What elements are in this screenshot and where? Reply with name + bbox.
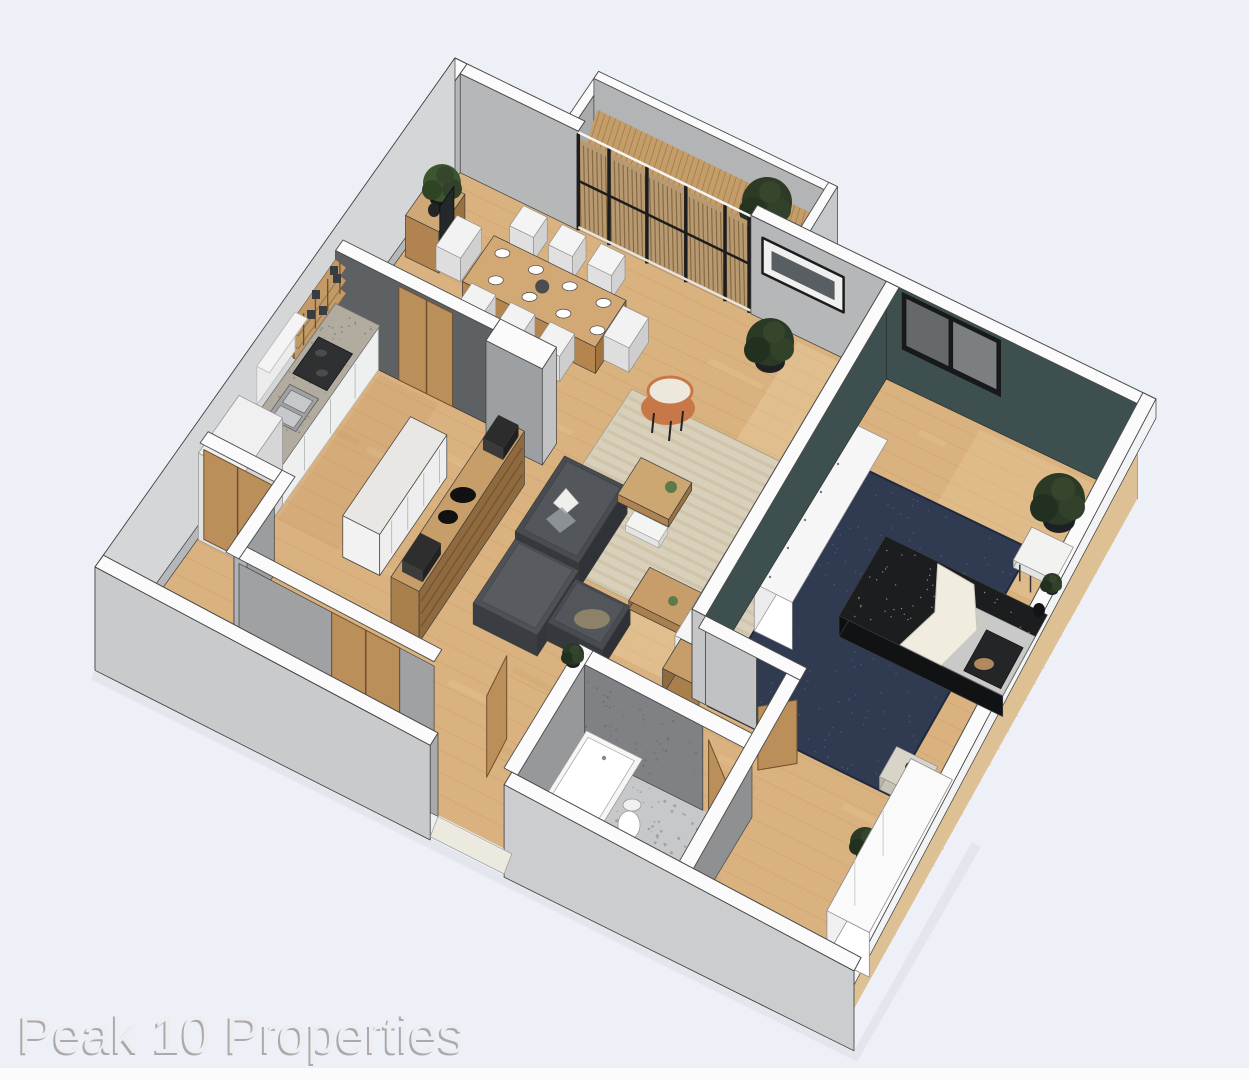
svg-text:Peak 10 Properties: Peak 10 Properties (18, 1006, 465, 1065)
